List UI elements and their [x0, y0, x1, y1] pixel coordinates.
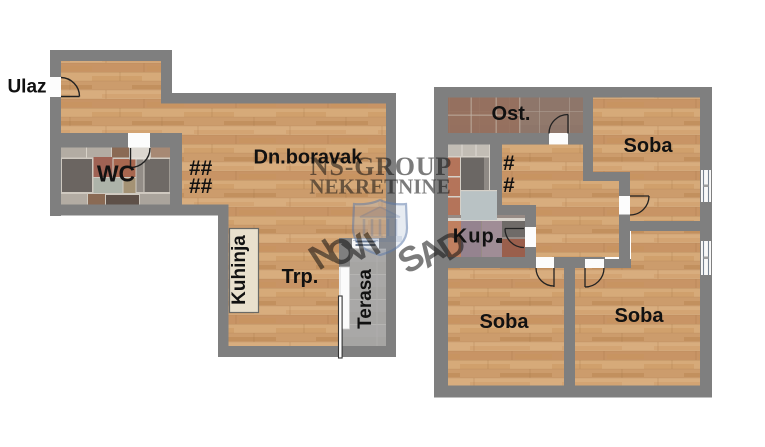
svg-text:Terasa: Terasa [355, 269, 376, 329]
svg-text:Kuhinja: Kuhinja [229, 235, 250, 305]
svg-text:Trp.: Trp. [282, 266, 319, 288]
svg-text:NEKRETNINE: NEKRETNINE [309, 175, 450, 199]
svg-text:#: # [503, 174, 515, 197]
svg-text:Soba: Soba [615, 305, 665, 327]
svg-text:Ulaz: Ulaz [7, 77, 46, 98]
svg-text:WC: WC [97, 161, 135, 187]
svg-text:Ost.: Ost. [492, 103, 531, 125]
svg-text:Soba: Soba [624, 135, 674, 157]
svg-text:Soba: Soba [480, 311, 530, 333]
svg-text:#: # [503, 152, 515, 175]
svg-text:##: ## [189, 175, 213, 198]
